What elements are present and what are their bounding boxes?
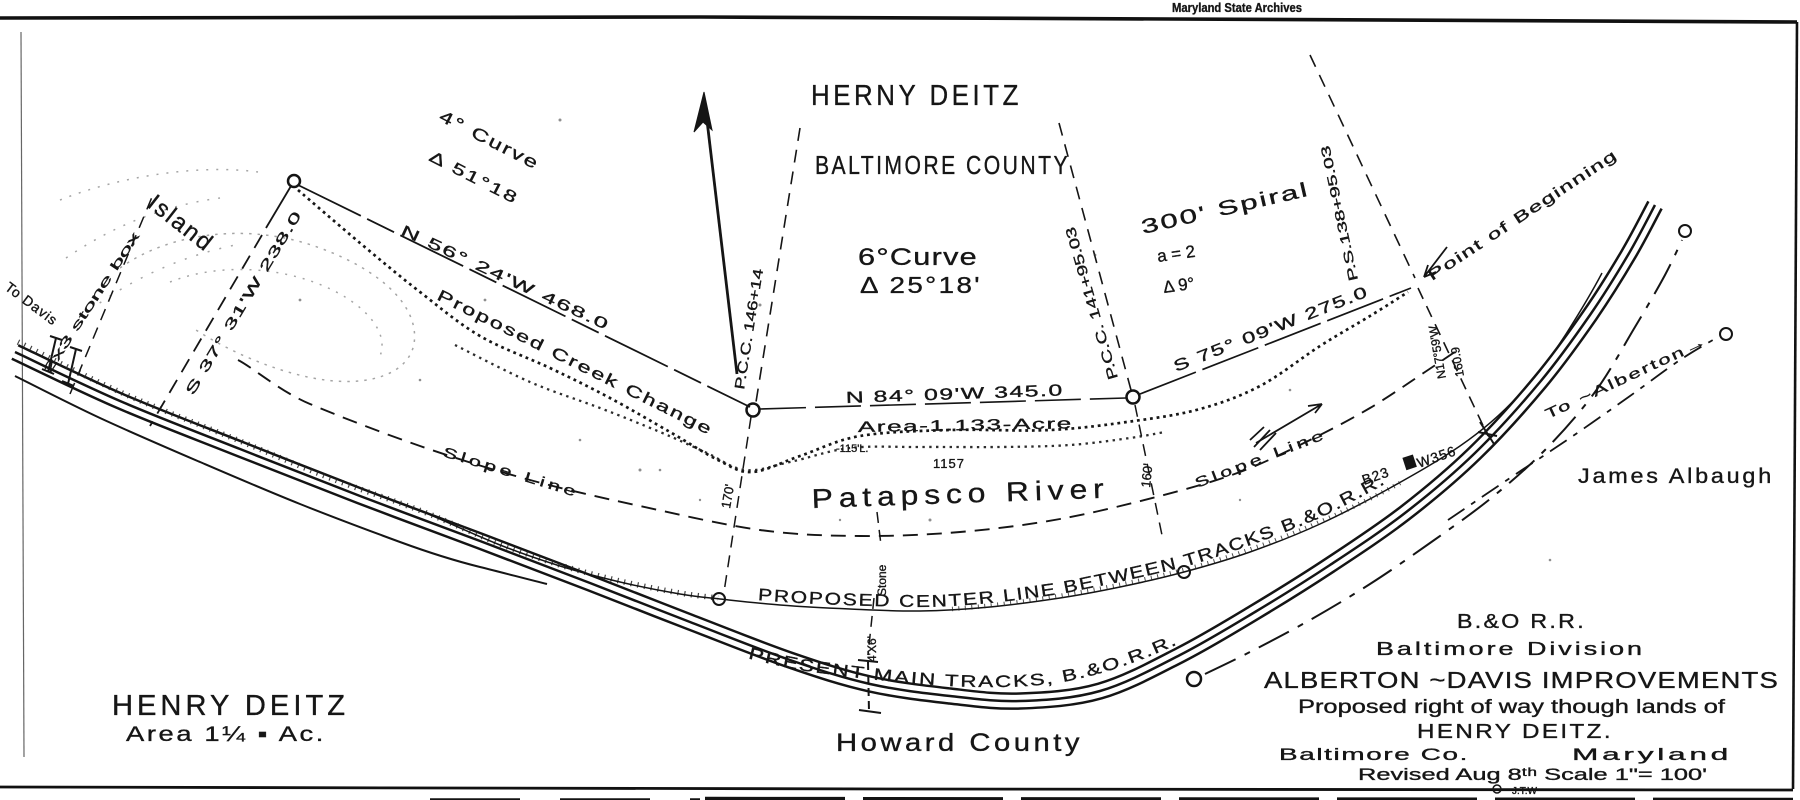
svg-text:Area 1¼ ▪ Ac.: Area 1¼ ▪ Ac. — [126, 723, 326, 746]
svg-text:Proposed right of way though l: Proposed right of way though lands of — [1298, 697, 1726, 718]
svg-text:-115'L.: -115'L. — [836, 443, 868, 455]
svg-text:Howard County: Howard County — [836, 729, 1083, 757]
svg-text:Patapsco River: Patapsco River — [811, 474, 1110, 514]
svg-text:ALBERTON ~DAVIS IMPROVEMENTS: ALBERTON ~DAVIS IMPROVEMENTS — [1264, 667, 1779, 693]
svg-text:BALTIMORE COUNTY: BALTIMORE COUNTY — [815, 150, 1070, 180]
svg-text:Δ 9°: Δ 9° — [1162, 274, 1196, 297]
svg-text:Point of Beginning: Point of Beginning — [1425, 147, 1621, 285]
svg-text:Maryland: Maryland — [1572, 745, 1732, 764]
svg-text:170': 170' — [718, 483, 737, 509]
svg-text:W356: W356 — [1415, 442, 1459, 470]
svg-text:PRESENT MAIN TRACKS, B.&O.R: PRESENT MAIN TRACKS, B.&O.R.R. — [747, 631, 1180, 691]
svg-text:Area-1.133-Acre: Area-1.133-Acre — [858, 415, 1073, 436]
svg-text:160.9: 160.9 — [1448, 346, 1467, 378]
svg-text:Δ 25°18': Δ 25°18' — [860, 272, 982, 298]
svg-text:N17°59'W: N17°59'W — [1426, 324, 1449, 380]
svg-text:HENRY DEITZ.: HENRY DEITZ. — [1417, 721, 1613, 743]
svg-text:300' Spiral: 300' Spiral — [1139, 179, 1312, 239]
svg-text:J.T.W: J.T.W — [1512, 786, 1538, 797]
svg-text:2x3 stone box: 2x3 stone box — [41, 228, 143, 375]
svg-text:Slope Line: Slope Line — [441, 444, 581, 501]
svg-text:James Albaugh: James Albaugh — [1578, 465, 1774, 488]
svg-text:Baltimore Co.: Baltimore Co. — [1279, 745, 1469, 764]
svg-text:P.C.C. 141+95.03: P.C.C. 141+95.03 — [1062, 225, 1121, 382]
svg-text:HENRY DEITZ: HENRY DEITZ — [112, 690, 349, 722]
svg-text:To Davis: To Davis — [2, 279, 61, 329]
svg-text:1157: 1157 — [933, 456, 965, 471]
svg-text:S 75° 09'W 275.0: S 75° 09'W 275.0 — [1171, 284, 1371, 376]
svg-text:Stone: Stone — [875, 564, 889, 596]
svg-text:P.S.138+95.03: P.S.138+95.03 — [1318, 144, 1361, 282]
svg-text:160': 160' — [1138, 463, 1155, 489]
svg-text:B.&O R.R.: B.&O R.R. — [1457, 611, 1586, 633]
svg-text:4'X6': 4'X6' — [865, 636, 879, 662]
svg-text:Revised Aug 8ᵗʰ Scale 1"= 10: Revised Aug 8ᵗʰ Scale 1"= 100' — [1358, 765, 1707, 784]
svg-text:Slope Line: Slope Line — [1192, 426, 1328, 491]
svg-text:Maryland State Archives: Maryland State Archives — [1172, 0, 1302, 15]
svg-text:HERNY DEITZ: HERNY DEITZ — [811, 80, 1022, 112]
svg-text:6°Curve: 6°Curve — [858, 244, 978, 271]
svg-text:Baltimore Division: Baltimore Division — [1376, 639, 1645, 659]
svg-text:a = 2: a = 2 — [1156, 242, 1197, 266]
svg-text:N 56° 24'W 468.0: N 56° 24'W 468.0 — [398, 222, 612, 334]
